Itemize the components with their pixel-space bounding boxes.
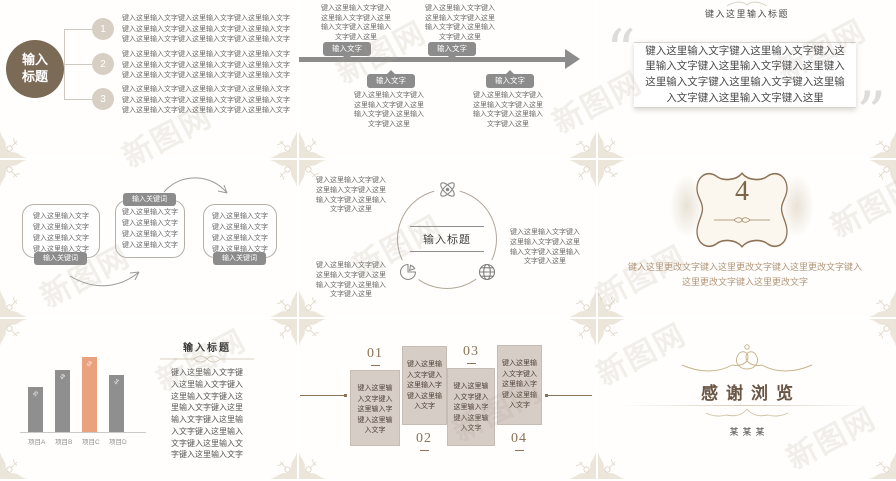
step-box: 键入这里输入文字键入这里输入字键入这里输入文字 [402, 346, 447, 425]
chart-plot-area: 35485844 [20, 335, 146, 433]
divider-line [620, 405, 872, 406]
corner-lace-ornament [569, 160, 596, 187]
connector-line [64, 64, 92, 65]
step-box: 键入这里输入文字键入这里输入字键入这里输入文字 [350, 370, 400, 446]
chart-bar: 58 [82, 357, 97, 432]
timeline-label-pill: 输入文字 [323, 42, 371, 56]
corner-lace-ornament [299, 131, 326, 158]
flourish-ornament [702, 407, 792, 421]
step-box: 键入这里输入文字键入这里输入字键入这里输入文字 [447, 368, 495, 446]
decorative-line [300, 395, 345, 396]
open-quote-icon: “ [606, 22, 636, 80]
corner-lace-ornament [270, 452, 297, 479]
template-preview-page: 输入 标题 1 2 3 键入这里输入文字键入这里输入文字键入这里输入文字键入这里… [0, 0, 896, 481]
placeholder-text: 键入这里输入文字键入这里输入文字键入这里输入文字键入这里输入文字键入这里 [473, 91, 543, 130]
divider-ornament [714, 216, 770, 224]
bar-category-label: 项目C [82, 436, 97, 446]
closing-title: 感谢浏览 [598, 379, 896, 404]
corner-lace-ornament [0, 131, 27, 158]
bar-category-label: 项目B [55, 436, 70, 446]
chart-bar: 35 [28, 387, 43, 433]
corner-lace-ornament [569, 290, 596, 317]
title-circle: 输入 标题 [6, 40, 64, 98]
bar-value-label: 35 [31, 390, 39, 398]
slide-7-chart: 35485844 项目A项目B项目C项目D 输入标题 键入这里输入文字键入这里输… [0, 319, 297, 479]
atom-icon [434, 176, 460, 202]
timeline-label-pill: 输入文字 [428, 42, 476, 56]
slide-8-steps: 01 02 03 04 键入这里输入文字键入这里输入字键入这里输入文字 键入这里… [299, 319, 596, 479]
connector-line [64, 29, 92, 30]
corner-lace-ornament [569, 131, 596, 158]
corner-lace-ornament [869, 160, 896, 187]
keyword-box: 键入这里输入文字 键入这里输入文字 键入这里输入文字 键入这里输入文字 [115, 200, 185, 258]
slide-2-timeline: 键入这里输入文字键入这里输入文字键入这里输入文字键入这里输入文字键入这里 键入这… [299, 0, 596, 158]
keyword-label-pill: 输入关键词 [213, 252, 266, 265]
slide-5-cycle: 输入标题 键入这里输入文字键入这里输入文字键入这里输入文字键入这里输入文字键入这… [299, 160, 596, 317]
corner-lace-ornament [0, 452, 27, 479]
chart-bar: 48 [55, 370, 70, 432]
corner-lace-ornament [270, 319, 297, 346]
corner-lace-ornament [598, 131, 625, 158]
placeholder-text: 键入这里输入文字键入这里输入文字键入这里输入文字键入这里输入文字键入这里键入这里… [645, 44, 845, 107]
placeholder-text: 键入这里输入文字键入这里输入文字键入这里输入文字键入这里输入文字键入这里输入文字… [122, 50, 294, 82]
corner-lace-ornament [569, 452, 596, 479]
bar-value-label: 58 [85, 360, 93, 368]
timeline-label-pill: 输入文字 [367, 74, 415, 88]
slide-6-section-number: 4 键入这里更改文字键入这里更改文字键入这里更改文字键入这里更改文字键入这里更改… [598, 160, 896, 317]
item-number-badge: 1 [92, 18, 114, 40]
timeline-arrow [299, 57, 567, 62]
corner-lace-ornament [569, 319, 596, 346]
corner-lace-ornament [299, 452, 326, 479]
item-number-badge: 2 [92, 53, 114, 75]
keyword-box: 键入这里输入文字 键入这里输入文字 键入这里输入文字 键入这里输入文字 [203, 204, 277, 258]
placeholder-text: 键入这里输入文字键入这里输入文字键入这里输入文字键入这里输入文字键入这里 [425, 4, 495, 43]
step-number: 01 [350, 346, 400, 366]
step-number: 04 [494, 431, 544, 451]
keyword-box: 键入这里输入文字 键入这里输入文字 键入这里输入文字 键入这里输入文字 [22, 204, 100, 258]
quote-card: 键入这里输入文字键入这里输入文字键入这里输入文字键入这里输入文字键入这里键入这里… [634, 42, 856, 108]
bar-category-label: 项目D [109, 436, 124, 446]
bar-value-label: 48 [58, 373, 66, 381]
divider-ornament [160, 354, 254, 364]
corner-lace-ornament [598, 319, 625, 346]
placeholder-text: 键入这里输入文字键入这里输入文字键入这里输入文字键入这里输入文字键入这里输入文字… [169, 367, 245, 461]
flourish-ornament [672, 343, 822, 375]
placeholder-text: 键入这里输入文字键入这里输入文字键入这里输入文字键入这里输入文字键入这里 [315, 261, 387, 300]
placeholder-text: 键入这里输入文字键入这里输入文字键入这里输入文字键入这里输入文字键入这里 [509, 228, 581, 267]
diagram-title: 输入标题 [410, 226, 484, 252]
decorative-line [547, 395, 592, 396]
pie-chart-icon [395, 259, 421, 285]
placeholder-text: 键入这里输入文字键入这里输入文字键入这里输入文字键入这里输入文字键入这里输入文字… [122, 85, 294, 117]
placeholder-text: 键入这里输入文字键入这里输入文字键入这里输入文字键入这里输入文字键入这里输入文字… [122, 14, 294, 46]
corner-lace-ornament [598, 290, 625, 317]
placeholder-text: 键入这里输入文字键入这里输入文字键入这里输入文字键入这里输入文字键入这里 [315, 176, 387, 215]
item-number-badge: 3 [92, 88, 114, 110]
close-quote-icon: ” [856, 84, 886, 142]
corner-lace-ornament [869, 290, 896, 317]
author-name: 某某某 [598, 425, 896, 438]
timeline-arrowhead [565, 49, 580, 69]
slide-4-keywords: 键入这里输入文字 键入这里输入文字 键入这里输入文字 键入这里输入文字 键入这里… [0, 160, 297, 317]
corner-lace-ornament [869, 452, 896, 479]
step-box: 键入这里输入文字键入这里输入字键入这里输入文字 [497, 345, 542, 425]
globe-icon [474, 259, 500, 285]
corner-lace-ornament [598, 452, 625, 479]
slide-9-thanks: 感谢浏览 某某某 [598, 319, 896, 479]
corner-lace-ornament [598, 160, 625, 187]
connector-line [64, 99, 92, 100]
placeholder-text: 键入这里输入文字键入这里输入文字键入这里输入文字键入这里输入文字键入这里 [354, 91, 424, 130]
slide-title: 键入这里输入标题 [598, 7, 896, 20]
chart-bar: 44 [109, 375, 124, 432]
panel-title: 输入标题 [155, 339, 259, 354]
keyword-label-pill: 输入关键词 [123, 193, 176, 206]
step-number: 03 [446, 344, 496, 364]
corner-lace-ornament [299, 319, 326, 346]
bar-value-label: 44 [112, 378, 120, 386]
step-number: 02 [399, 431, 449, 451]
section-number: 4 [690, 176, 794, 208]
bar-chart: 35485844 项目A项目B项目C项目D [20, 335, 146, 446]
corner-lace-ornament [869, 319, 896, 346]
placeholder-text: 键入这里更改文字键入这里更改文字键入这里更改文字键入这里更改文字键入这里更改文字 [628, 260, 862, 290]
slide-1-list: 输入 标题 1 2 3 键入这里输入文字键入这里输入文字键入这里输入文字键入这里… [0, 0, 297, 158]
keyword-label-pill: 输入关键词 [34, 252, 87, 265]
slide-3-quote: 键入这里输入标题 “ 键入这里输入文字键入这里输入文字键入这里输入文字键入这里输… [598, 0, 896, 158]
bar-category-label: 项目A [28, 436, 43, 446]
slide-grid: 输入 标题 1 2 3 键入这里输入文字键入这里输入文字键入这里输入文字键入这里… [0, 0, 896, 481]
timeline-label-pill: 输入文字 [486, 74, 534, 88]
chart-category-axis: 项目A项目B项目C项目D [20, 433, 146, 446]
corner-lace-ornament [270, 131, 297, 158]
placeholder-text: 键入这里输入文字键入这里输入文字键入这里输入文字键入这里输入文字键入这里 [321, 4, 391, 43]
